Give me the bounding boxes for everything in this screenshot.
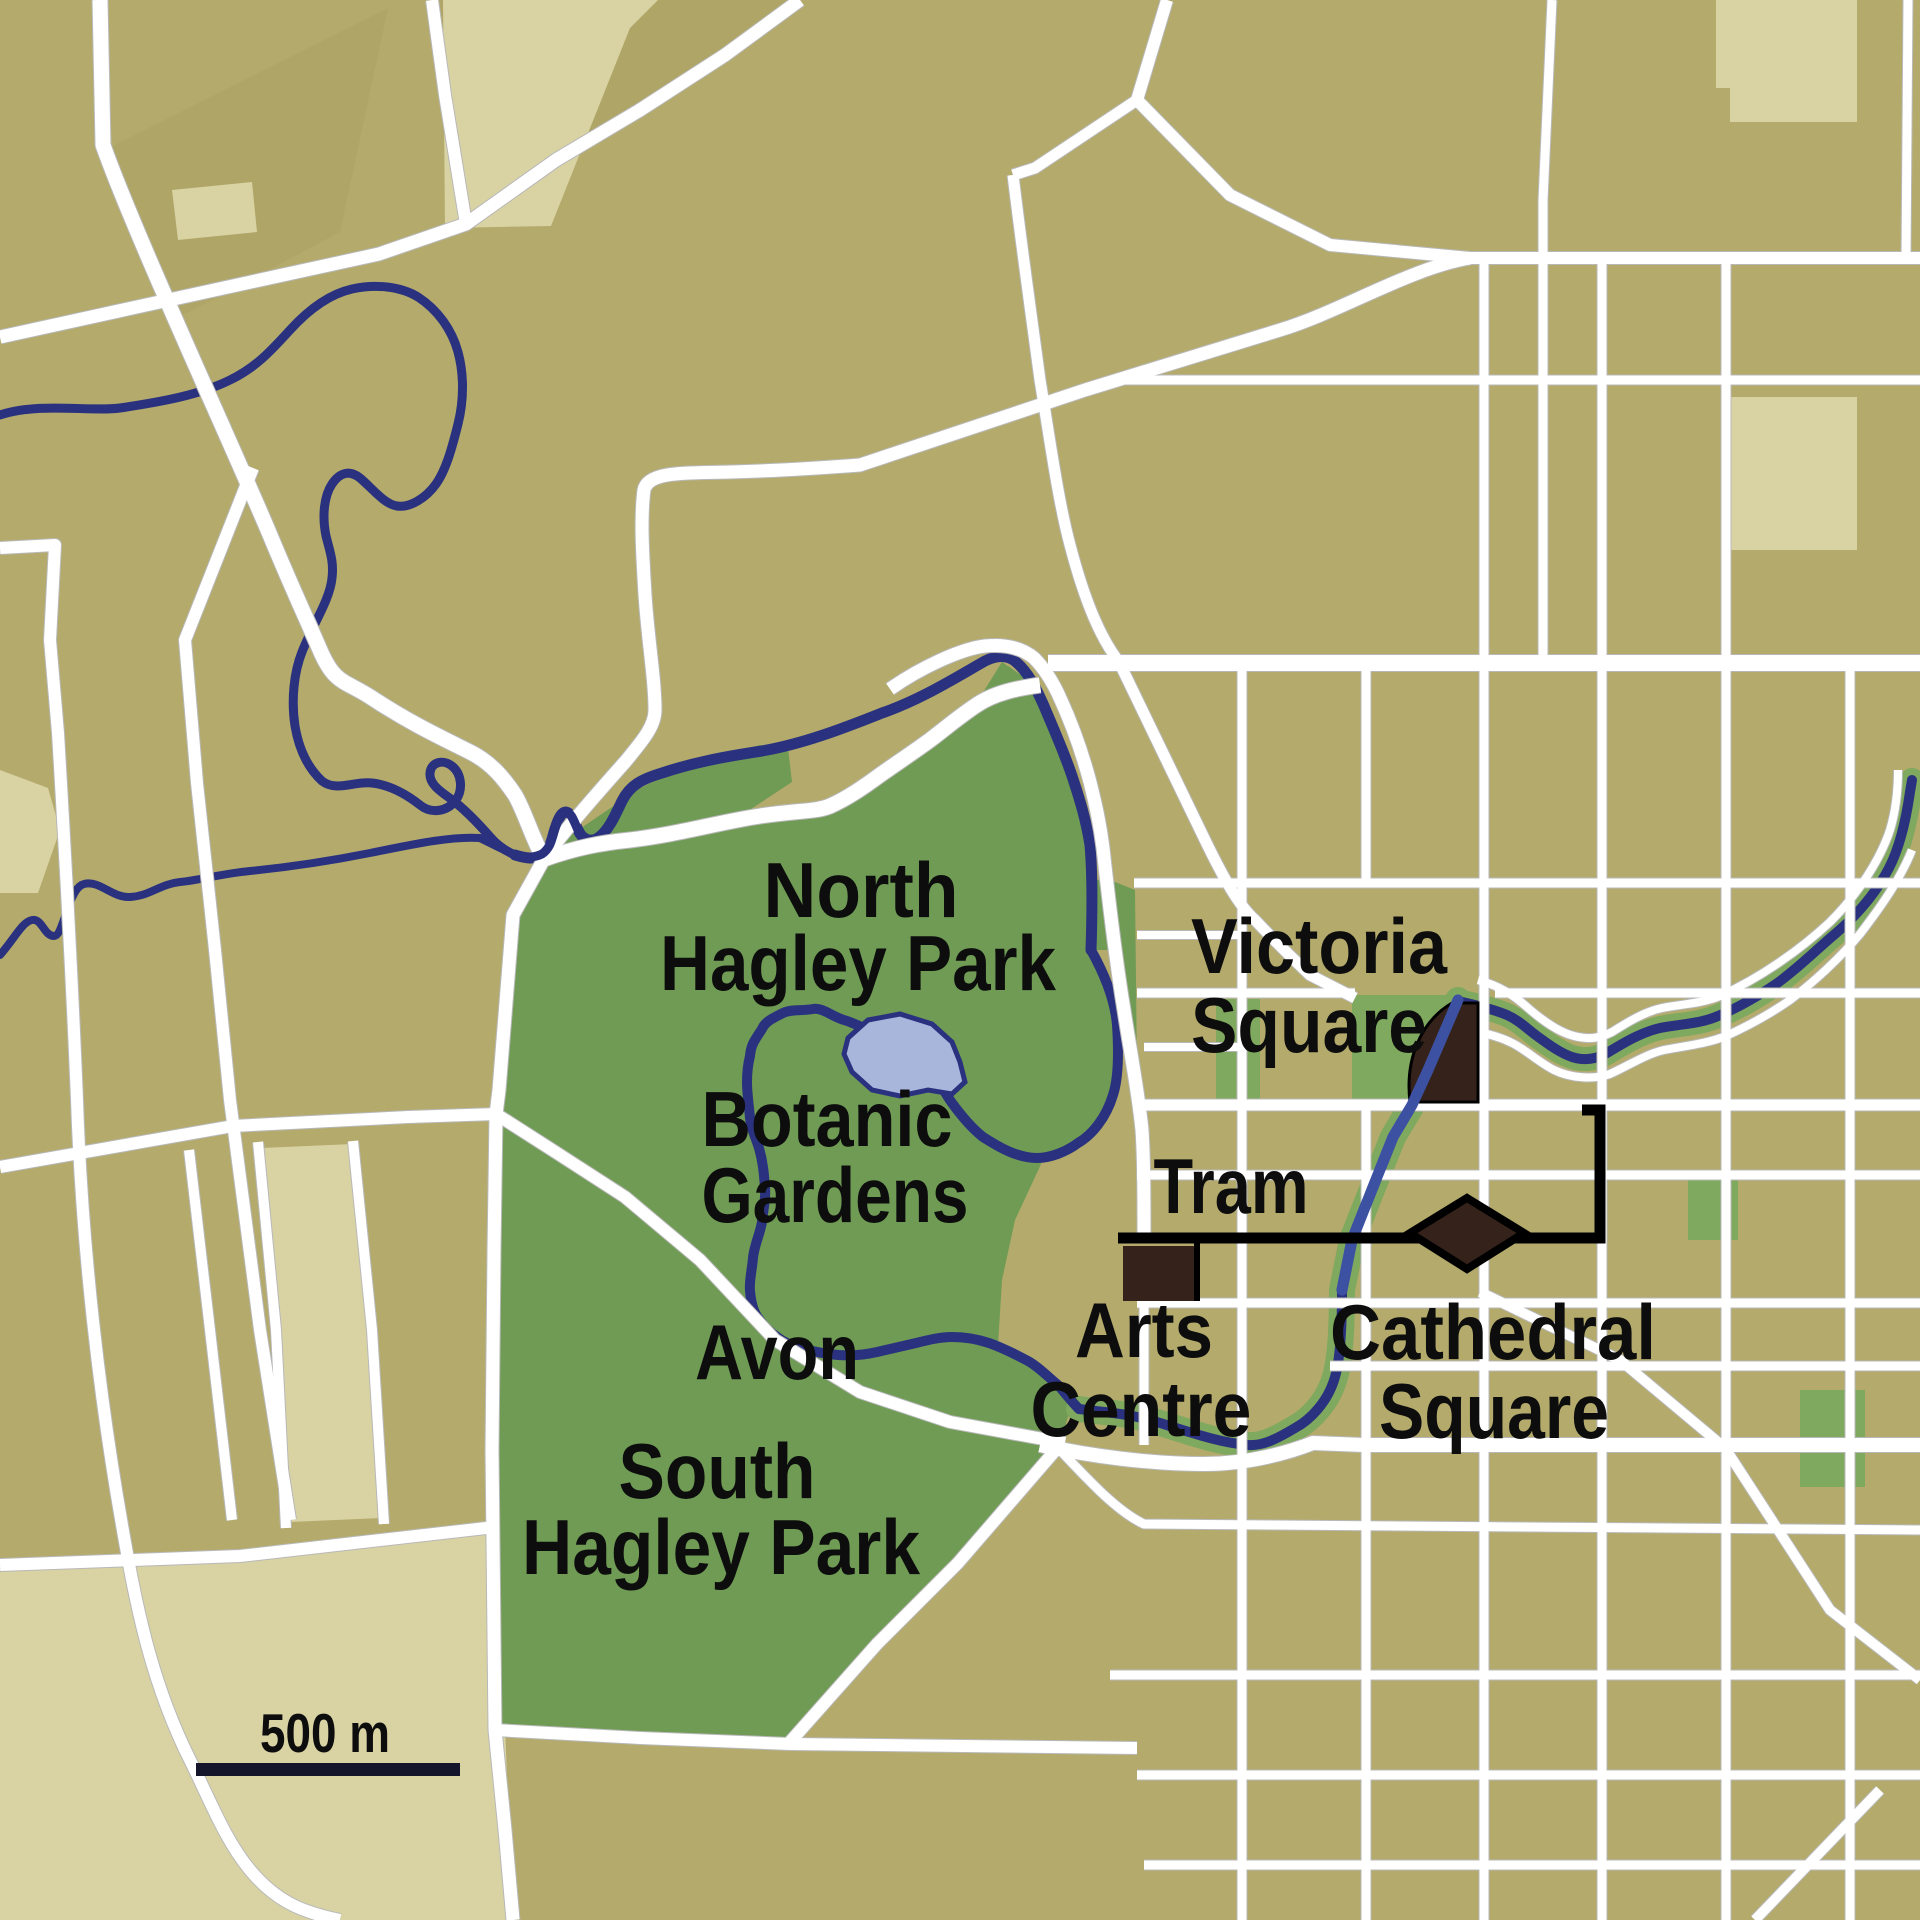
svg-text:Gardens: Gardens	[702, 1151, 969, 1239]
svg-text:Botanic: Botanic	[702, 1075, 953, 1163]
svg-text:Square: Square	[1379, 1367, 1609, 1455]
svg-text:Tram: Tram	[1154, 1142, 1309, 1230]
svg-text:South: South	[619, 1427, 816, 1515]
svg-text:Hagley Park: Hagley Park	[660, 919, 1057, 1007]
svg-text:Victoria: Victoria	[1191, 902, 1448, 990]
svg-text:Centre: Centre	[1031, 1365, 1252, 1453]
svg-text:Hagley Park: Hagley Park	[522, 1503, 921, 1591]
svg-text:Arts: Arts	[1075, 1286, 1213, 1374]
svg-text:Cathedral: Cathedral	[1330, 1288, 1656, 1376]
svg-text:Avon: Avon	[695, 1308, 859, 1396]
svg-text:Square: Square	[1191, 981, 1427, 1069]
svg-text:500 m: 500 m	[260, 1702, 390, 1764]
